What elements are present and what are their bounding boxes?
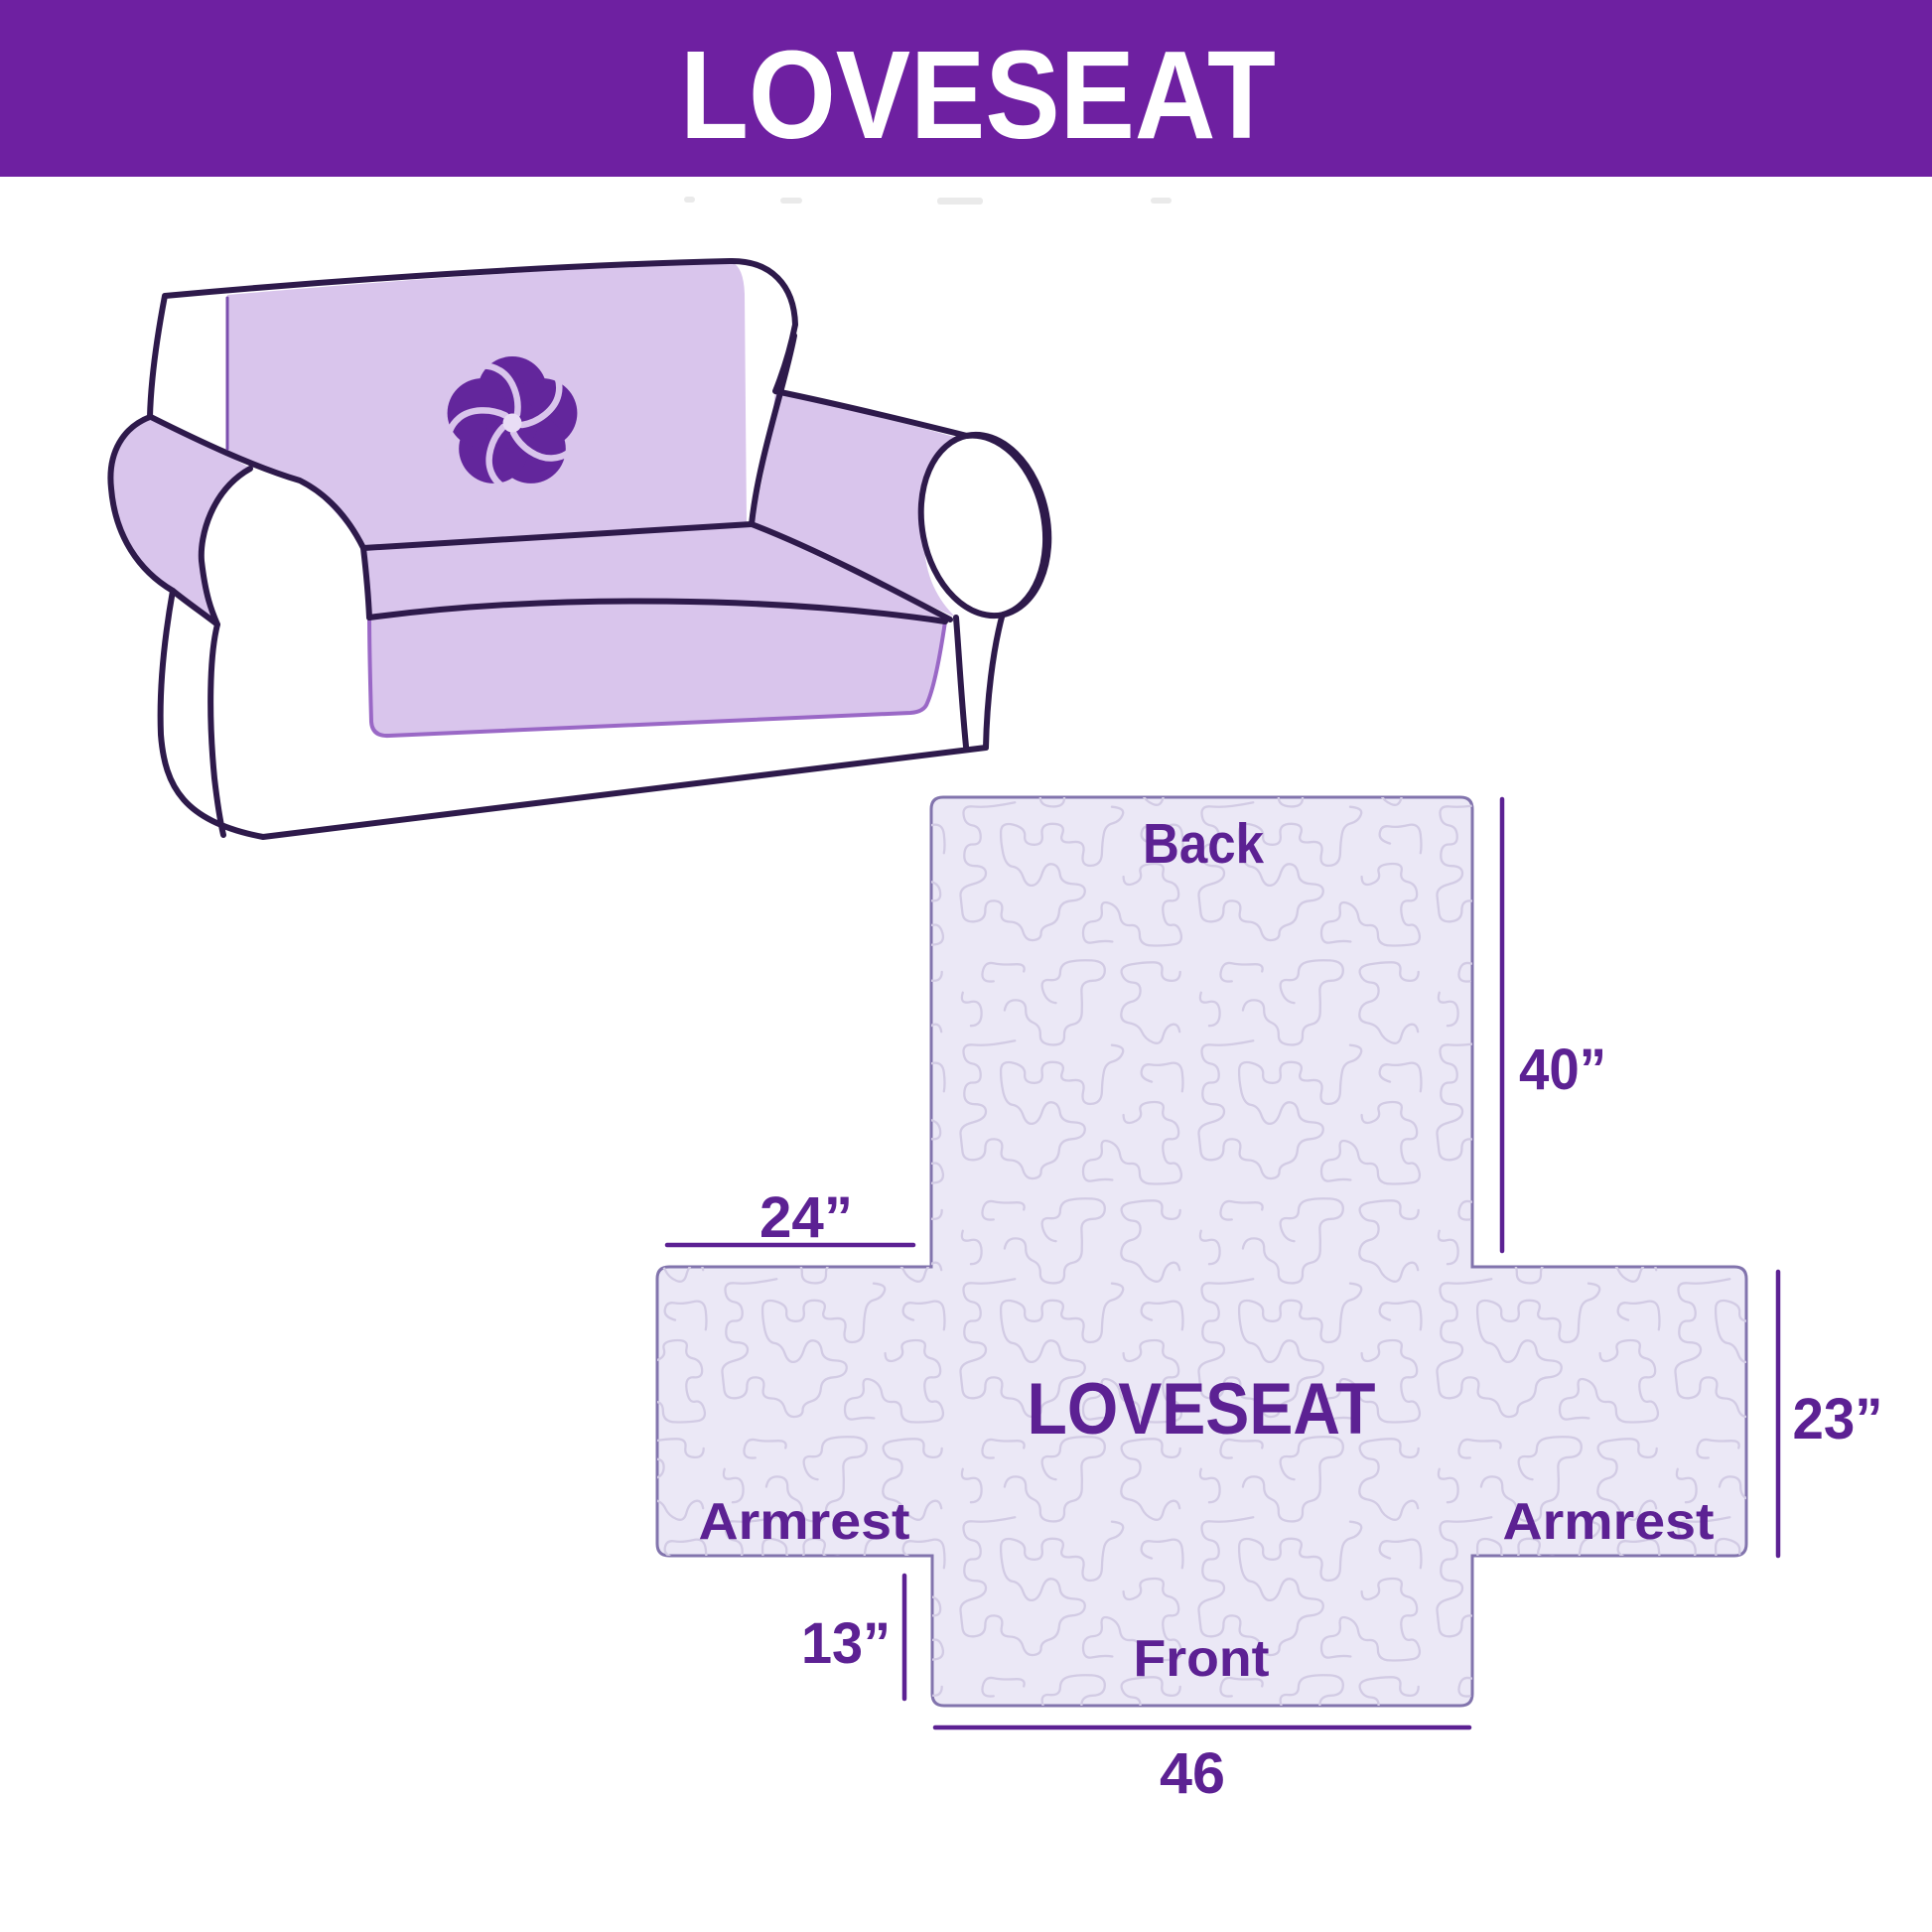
svg-text:24”: 24” bbox=[759, 1185, 853, 1250]
svg-text:LOVESEAT: LOVESEAT bbox=[1028, 1369, 1376, 1449]
svg-text:23”: 23” bbox=[1793, 1387, 1883, 1451]
svg-text:13”: 13” bbox=[801, 1611, 891, 1676]
svg-text:46: 46 bbox=[1160, 1741, 1225, 1806]
svg-text:Armrest: Armrest bbox=[699, 1493, 910, 1551]
svg-text:Back: Back bbox=[1143, 812, 1264, 876]
svg-text:LOVESEAT: LOVESEAT bbox=[680, 25, 1276, 165]
svg-text:40”: 40” bbox=[1519, 1037, 1606, 1102]
svg-text:Armrest: Armrest bbox=[1503, 1493, 1715, 1551]
svg-text:Front: Front bbox=[1134, 1630, 1270, 1688]
